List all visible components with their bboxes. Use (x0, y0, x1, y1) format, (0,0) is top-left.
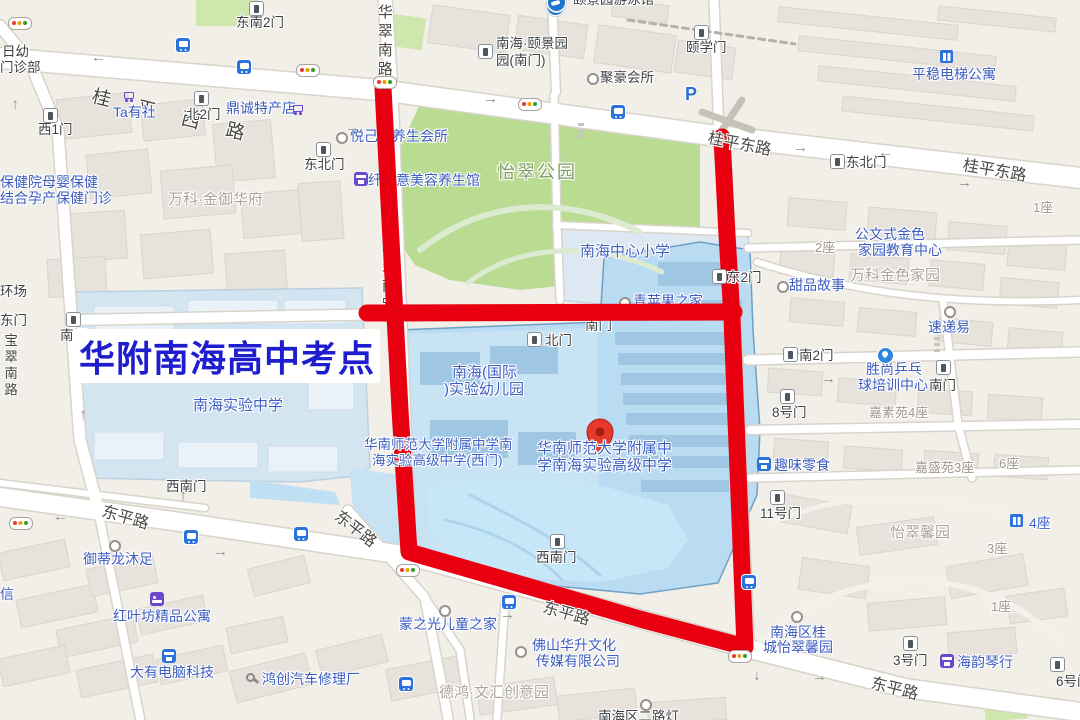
gate-label[interactable]: 东门 (0, 313, 27, 328)
area-label: 2座 (815, 241, 835, 256)
poi-label[interactable]: 传媒有限公司 (536, 654, 620, 670)
exam-site-title-box: 华附南海高中考点 (74, 329, 380, 383)
poi-label[interactable]: 家园教育中心 (858, 243, 942, 259)
poi-label[interactable]: 大有电脑科技 (130, 665, 214, 681)
area-label: 万科金色家园 (850, 268, 940, 285)
poi-label[interactable]: 海韵琴行 (957, 655, 1013, 671)
poi-dot-icon[interactable] (777, 281, 789, 293)
traffic-light-icon (8, 17, 32, 30)
gate-label[interactable]: 聚豪会所 (600, 70, 654, 85)
traffic-light-icon (396, 564, 420, 577)
road-arrow: → (91, 52, 106, 69)
poi-label[interactable]: 保健院母婴保健 (0, 175, 98, 191)
gate-label[interactable]: 颐学门 (686, 40, 727, 55)
gate-label[interactable]: 园(南门) (496, 53, 546, 68)
gate-label[interactable]: 东南2门 (236, 15, 284, 30)
road-arrow: → (345, 120, 360, 137)
poi-label[interactable]: 蒙之光儿童之家 (399, 617, 497, 633)
area-label: 6座 (999, 457, 1019, 472)
school-label[interactable]: )实验幼儿园 (444, 382, 524, 399)
traffic-light-icon (518, 98, 542, 111)
gate-icon[interactable] (780, 389, 795, 404)
poi-label[interactable]: 速递易 (928, 320, 970, 336)
road-arrow: → (957, 175, 972, 192)
bus-stop-icon[interactable] (237, 60, 251, 74)
area-label: 德鸿·文汇创意园 (439, 685, 549, 702)
poi-label[interactable]: 佛山华升文化 (532, 638, 616, 654)
school-label[interactable]: 华南师范大学附属中学南 (364, 437, 513, 452)
school-label[interactable]: 海实验高级中学(西门) (372, 453, 503, 468)
gate-icon[interactable] (1050, 657, 1065, 672)
bus-stop-icon[interactable] (611, 105, 625, 119)
road-arrow: → (483, 91, 498, 108)
gate-label[interactable]: 西南门 (536, 550, 577, 565)
store-icon[interactable] (940, 654, 954, 668)
store-icon[interactable] (162, 649, 176, 663)
traffic-light-icon (9, 517, 33, 530)
bus-stop-icon[interactable] (176, 38, 190, 52)
traffic-light-icon (373, 76, 397, 89)
poi-label[interactable]: 平稳电梯公寓 (912, 67, 996, 83)
gate-label[interactable]: 西1门 (38, 122, 73, 137)
bus-stop-icon[interactable] (502, 595, 516, 609)
gate-icon[interactable] (316, 142, 331, 157)
bus-stop-icon[interactable] (399, 677, 413, 691)
school-label[interactable]: 南海实验中学 (193, 398, 283, 415)
gate-label[interactable]: 门诊部 (0, 60, 41, 75)
poi-label[interactable]: 甜品故事 (789, 278, 845, 294)
poi-dot-icon[interactable] (439, 605, 451, 617)
traffic-light-icon (296, 64, 320, 77)
road-arrow: → (793, 140, 808, 157)
gate-label[interactable]: 南门 (929, 378, 956, 393)
poi-label[interactable]: 趣味零食 (774, 458, 830, 474)
exam-route-line (367, 312, 734, 313)
road-arrow: → (750, 668, 767, 683)
gate-label[interactable]: 南海区二路灯 (598, 709, 679, 720)
area-label: 1座 (1033, 201, 1053, 216)
gate-label[interactable]: 东2门 (727, 270, 762, 285)
school-label[interactable]: 学南海实验高级中学 (537, 458, 672, 475)
bus-stop-icon[interactable] (184, 530, 198, 544)
poi-label[interactable]: 红叶坊精品公寓 (113, 609, 211, 625)
area-label: 怡翠馨园 (890, 525, 950, 542)
bus-stop-icon[interactable] (294, 527, 308, 541)
parking-icon[interactable]: P (685, 84, 697, 105)
school-label[interactable]: 南海(国际 (452, 365, 517, 382)
area-label: 嘉盛苑3座 (915, 461, 974, 476)
gate-label[interactable]: 6号门 (1056, 674, 1080, 689)
exam-site-title: 华附南海高中考点 (79, 330, 375, 382)
gate-label[interactable]: 8号门 (772, 405, 807, 420)
poi-dot-icon[interactable] (944, 306, 956, 318)
table-tennis-icon[interactable] (877, 347, 894, 364)
poi-label[interactable]: Ta有社 (113, 105, 156, 121)
road-arrow: → (500, 607, 515, 624)
school-label[interactable]: 南海中心小学 (580, 244, 670, 261)
area-label: 1座 (991, 600, 1011, 615)
area-label: 3座 (987, 542, 1007, 557)
gate-label[interactable]: 环场 (0, 284, 27, 299)
gate-label[interactable]: 11号门 (760, 506, 801, 521)
poi-label[interactable]: 信 (0, 587, 14, 603)
area-label: 嘉素苑4座 (869, 406, 928, 421)
gate-icon[interactable] (550, 534, 565, 549)
road-arrow: → (6, 97, 23, 112)
gate-label[interactable]: 南海·颐景园 (496, 36, 568, 51)
school-label[interactable]: 华南师范大学附属中 (537, 441, 672, 458)
poi-label[interactable]: 公文式金色 (855, 227, 925, 243)
poi-label[interactable]: 4座 (1029, 516, 1051, 532)
road-label: 宝翠南路 (2, 333, 17, 399)
map-canvas[interactable]: 华翠南路悦己颜养生会所纤体意美容养生馆青苹果之家南门东平路 日幼门诊部桂平西路东… (0, 0, 1080, 720)
building-icon[interactable] (1010, 514, 1023, 527)
poi-label[interactable]: 结合孕产保健门诊 (0, 191, 112, 207)
poi-label[interactable]: 御蒂龙沐足 (83, 552, 153, 568)
gate-icon[interactable] (694, 25, 709, 40)
gate-icon[interactable] (936, 360, 951, 375)
road-arrow: → (53, 511, 68, 528)
gate-label[interactable]: 3号门 (893, 653, 928, 668)
poi-dot-icon[interactable] (791, 611, 803, 623)
poi-label[interactable]: 胜尚乒乓 (866, 362, 922, 378)
gate-label[interactable]: 北门 (545, 333, 572, 348)
poi-dot-icon[interactable] (109, 540, 121, 552)
poi-dot-icon[interactable] (640, 699, 652, 711)
park-label[interactable]: 怡翠公园 (497, 162, 577, 182)
road-arrow: → (812, 669, 827, 686)
repair-icon[interactable] (246, 673, 259, 686)
gate-icon[interactable] (712, 269, 727, 284)
gate-icon[interactable] (783, 347, 798, 362)
road-arrow: → (174, 488, 191, 503)
road-arrow: → (878, 147, 893, 164)
poi-dot-icon[interactable] (515, 646, 527, 658)
road-label: 华翠南路 (375, 4, 392, 80)
store-icon[interactable] (757, 457, 771, 471)
gate-icon[interactable] (43, 108, 58, 123)
shop-cart-icon[interactable] (122, 89, 135, 102)
road-arrow: → (821, 371, 836, 388)
road-arrow: → (213, 544, 228, 561)
gate-label[interactable]: 南2门 (799, 348, 834, 363)
gate-label[interactable]: 日幼 (2, 44, 29, 59)
poi-label[interactable]: 城怡翠馨园 (763, 640, 833, 656)
gate-icon[interactable] (478, 44, 493, 59)
hotel-icon[interactable] (150, 592, 164, 606)
poi-dot-icon[interactable] (587, 73, 599, 85)
gate-icon[interactable] (66, 312, 81, 327)
gate-icon[interactable] (903, 636, 918, 651)
area-label: 万科·金御华府 (168, 192, 263, 209)
shop-cart-icon[interactable] (291, 102, 304, 115)
gate-icon[interactable] (527, 332, 542, 347)
gate-label[interactable]: 北2门 (186, 107, 221, 122)
gate-icon[interactable] (194, 91, 209, 106)
gate-icon[interactable] (770, 490, 785, 505)
building-icon[interactable] (940, 50, 953, 63)
poi-label[interactable]: 鸿创汽车修理厂 (262, 672, 360, 688)
gate-icon[interactable] (830, 154, 845, 169)
poi-label[interactable]: 鼎诚特产店 (226, 101, 296, 117)
gate-icon[interactable] (249, 1, 264, 16)
traffic-light-icon (728, 650, 752, 663)
bus-stop-icon[interactable] (742, 575, 756, 589)
gate-label[interactable]: 东北门 (304, 157, 345, 172)
poi-label[interactable]: 球培训中心 (858, 378, 928, 394)
road-arrow: → (74, 407, 91, 422)
gate-label[interactable]: 颐景园游泳馆 (573, 0, 654, 7)
